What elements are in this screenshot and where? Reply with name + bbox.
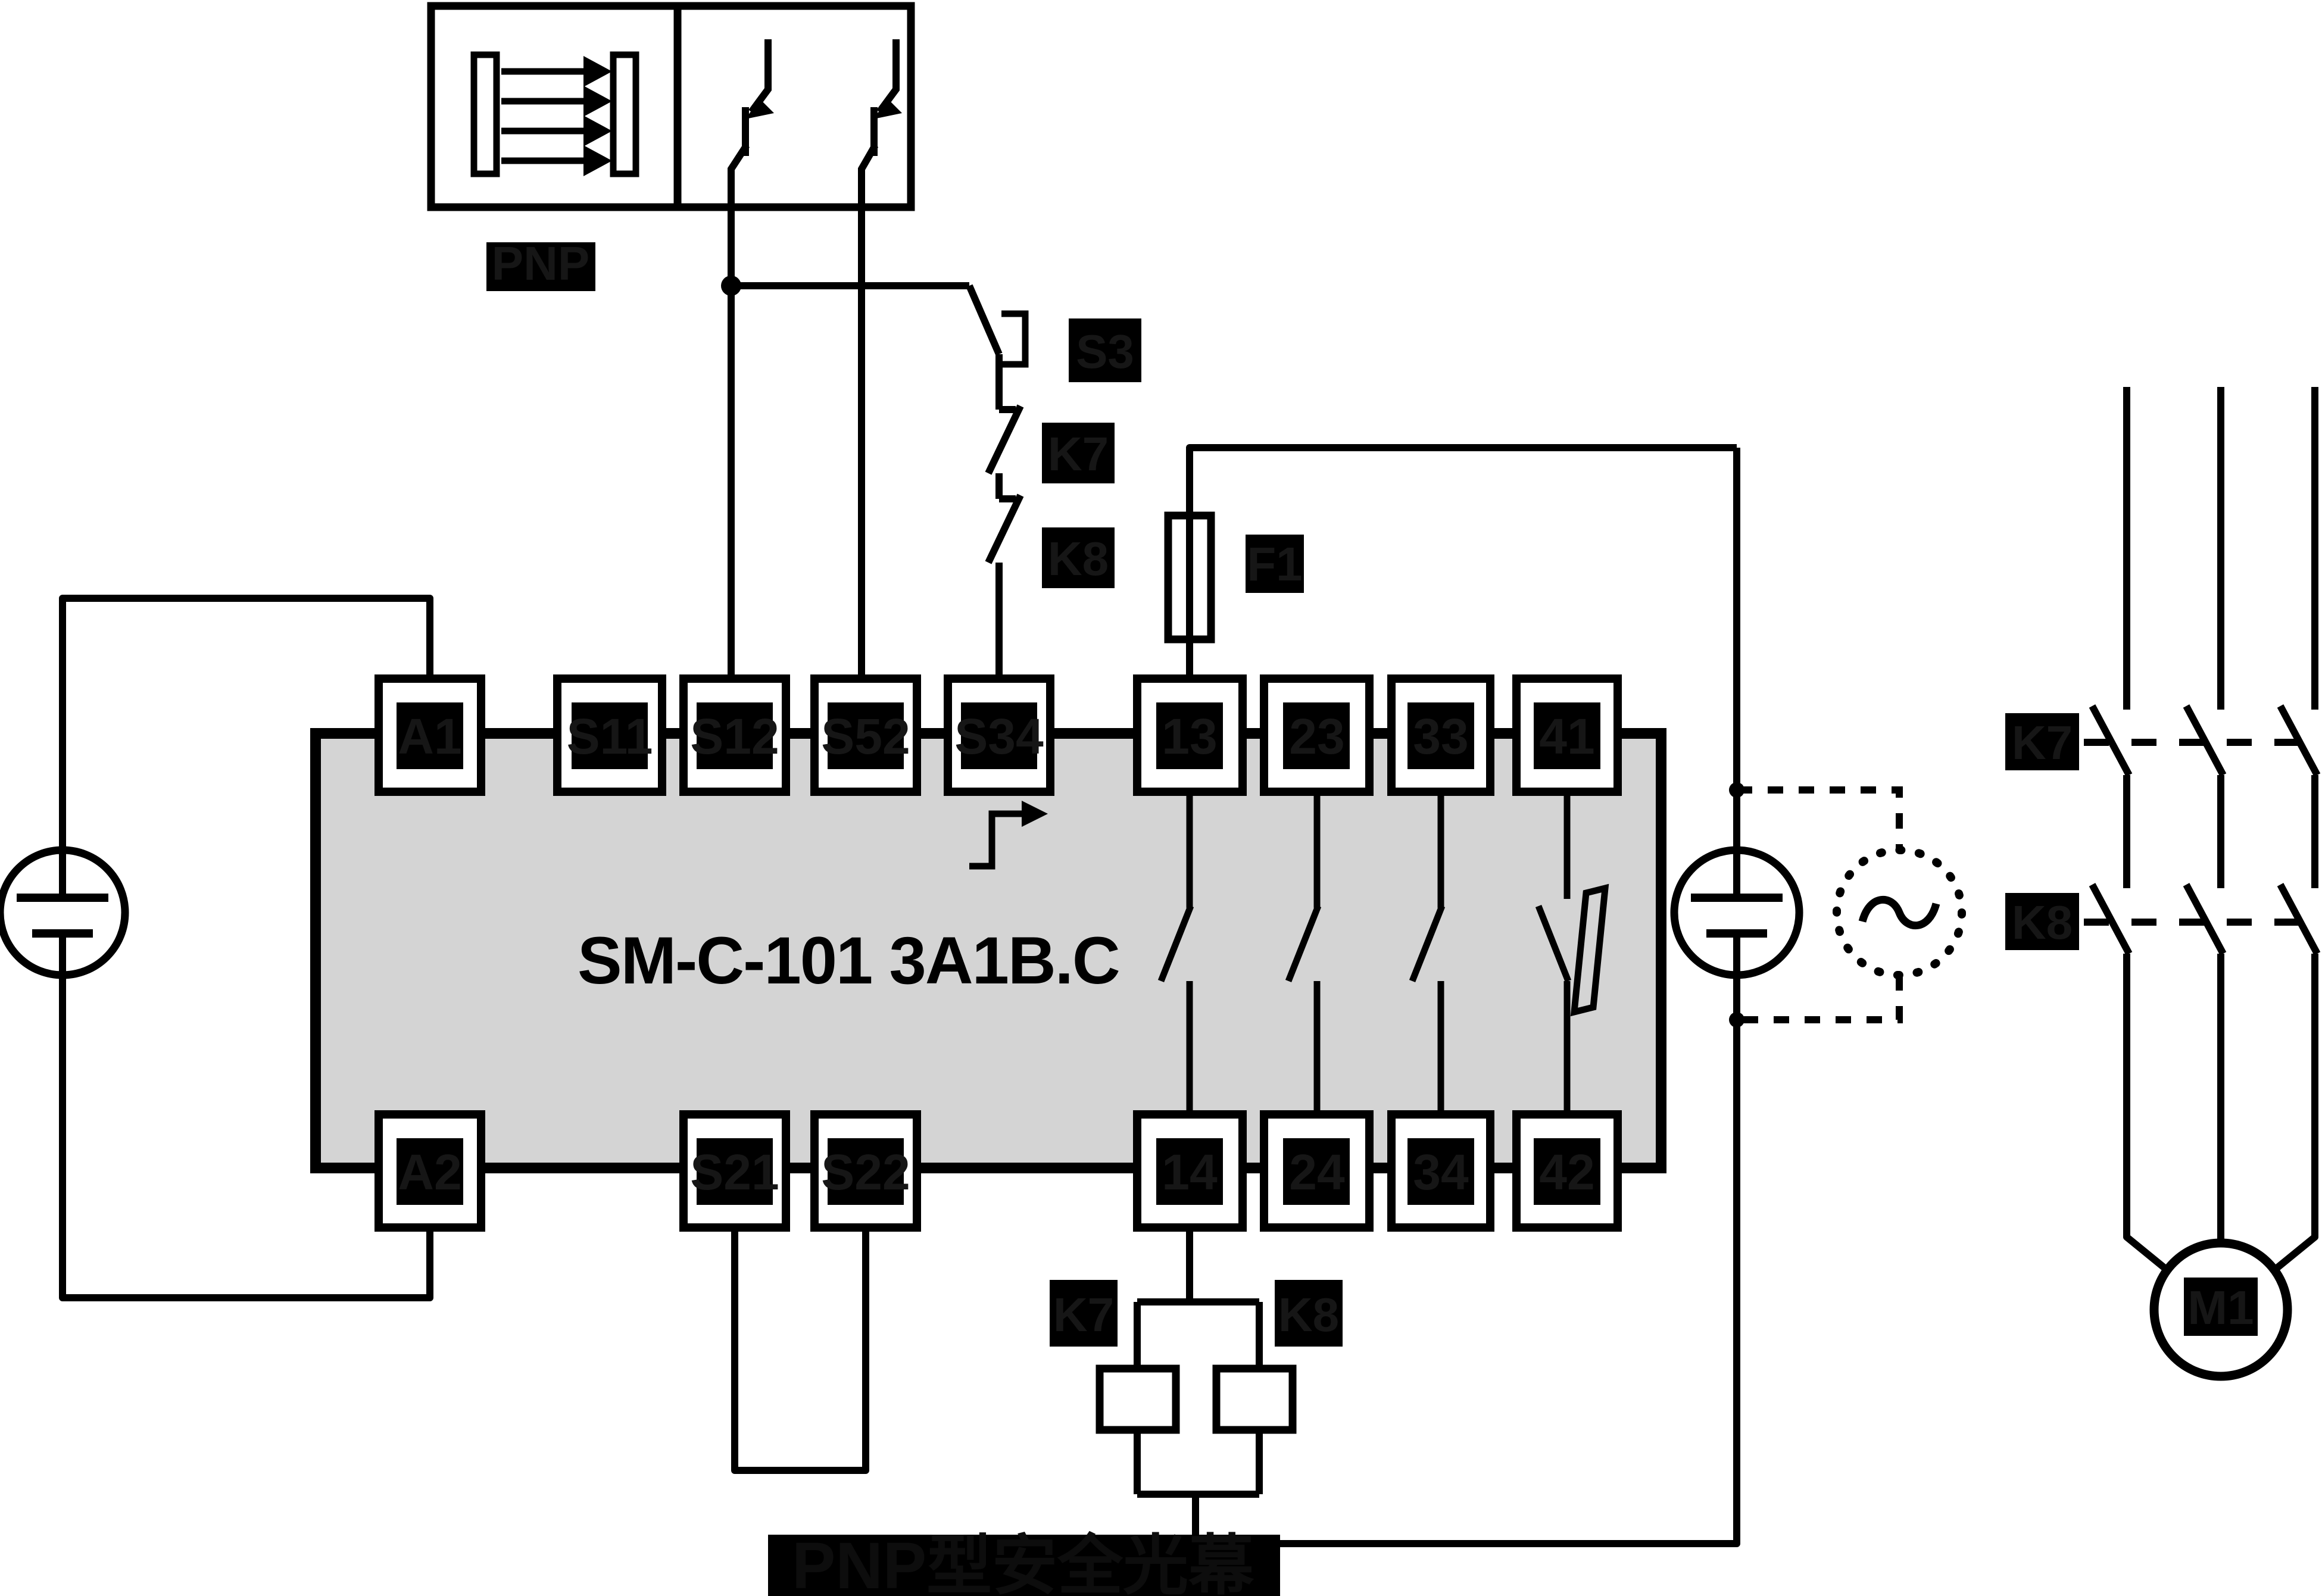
pnp-label: PNP [486,237,595,291]
light-curtain-box [431,6,911,207]
module-model: SM-C-101 3A1B.C [578,923,1119,998]
svg-text:S52: S52 [821,708,910,764]
dc-supply-right [1674,850,1799,975]
k8-coil [1216,1369,1293,1430]
svg-text:K8: K8 [1278,1288,1339,1341]
svg-text:S21: S21 [690,1144,779,1200]
terminal-33: 33 [1391,679,1490,792]
terminal-s12: S12 [684,679,786,792]
k7-coil-label: K7 [1050,1280,1118,1347]
k8-coil-label: K8 [1275,1280,1343,1347]
terminal-23: 23 [1264,679,1369,792]
svg-text:K7: K7 [1048,427,1109,480]
svg-text:34: 34 [1413,1144,1469,1200]
terminal-a1: A1 [379,679,481,792]
svg-text:S34: S34 [954,708,1044,764]
svg-text:S12: S12 [690,708,779,764]
svg-text:K7: K7 [1053,1288,1114,1341]
svg-text:S22: S22 [821,1144,910,1200]
terminal-s22: S22 [814,1114,917,1228]
terminal-row-top: A1 S11 S12 S52 S34 13 23 33 41 [379,679,1618,792]
terminal-34: 34 [1391,1114,1490,1228]
k8-feedback-label: K8 [1042,527,1115,588]
k7-feedback-label: K7 [1042,423,1115,483]
terminal-s21: S21 [684,1114,786,1228]
svg-text:A1: A1 [398,708,461,764]
svg-text:PNP: PNP [492,237,590,290]
svg-text:K8: K8 [2012,896,2073,949]
terminal-13: 13 [1137,679,1243,792]
caption-banner: PNP型安全光幕 [768,1529,1280,1596]
svg-text:F1: F1 [1247,538,1302,591]
contactor-linkage-dashes [2084,742,2310,922]
terminal-s34: S34 [948,679,1050,792]
safety-relay-module: SM-C-101 3A1B.C [316,733,1661,1168]
svg-text:K8: K8 [1048,532,1109,585]
phase-line-1 [2092,387,2172,1274]
wire-s21-s22-jumper [735,1228,866,1470]
terminal-42: 42 [1516,1114,1618,1228]
terminal-14: 14 [1137,1114,1243,1228]
terminal-s52: S52 [814,679,917,792]
wiring-diagram: SM-C-101 3A1B.C [0,0,2322,1596]
svg-text:S3: S3 [1076,325,1134,378]
caption-text: PNP型安全光幕 [792,1529,1254,1596]
terminal-a2: A2 [379,1114,481,1228]
phase-line-3 [2270,387,2317,1274]
svg-text:23: 23 [1289,708,1344,764]
m1-label: M1 [2184,1278,2258,1336]
s3-label: S3 [1069,318,1141,382]
terminal-24: 24 [1264,1114,1369,1228]
terminal-41: 41 [1516,679,1618,792]
dc-supply-left [0,850,125,975]
f1-label: F1 [1246,535,1304,593]
svg-text:13: 13 [1162,708,1217,764]
svg-text:S11: S11 [567,708,653,764]
k7-coil [1100,1369,1176,1430]
svg-text:33: 33 [1413,708,1468,764]
ac-sine-icon [1862,899,1936,925]
svg-text:M1: M1 [2187,1281,2254,1334]
svg-text:24: 24 [1289,1144,1345,1200]
svg-text:42: 42 [1539,1144,1594,1200]
svg-text:A2: A2 [398,1144,461,1200]
k7-contactor-label: K7 [2005,713,2079,770]
svg-text:41: 41 [1539,708,1594,764]
k8-contactor-label: K8 [2005,893,2079,950]
svg-text:14: 14 [1162,1144,1218,1200]
fuse-symbol [1168,516,1211,639]
terminal-s11: S11 [557,679,662,792]
phase-line-2 [2186,387,2223,1244]
svg-text:K7: K7 [2012,716,2073,769]
reset-button-actuator [1001,314,1025,364]
